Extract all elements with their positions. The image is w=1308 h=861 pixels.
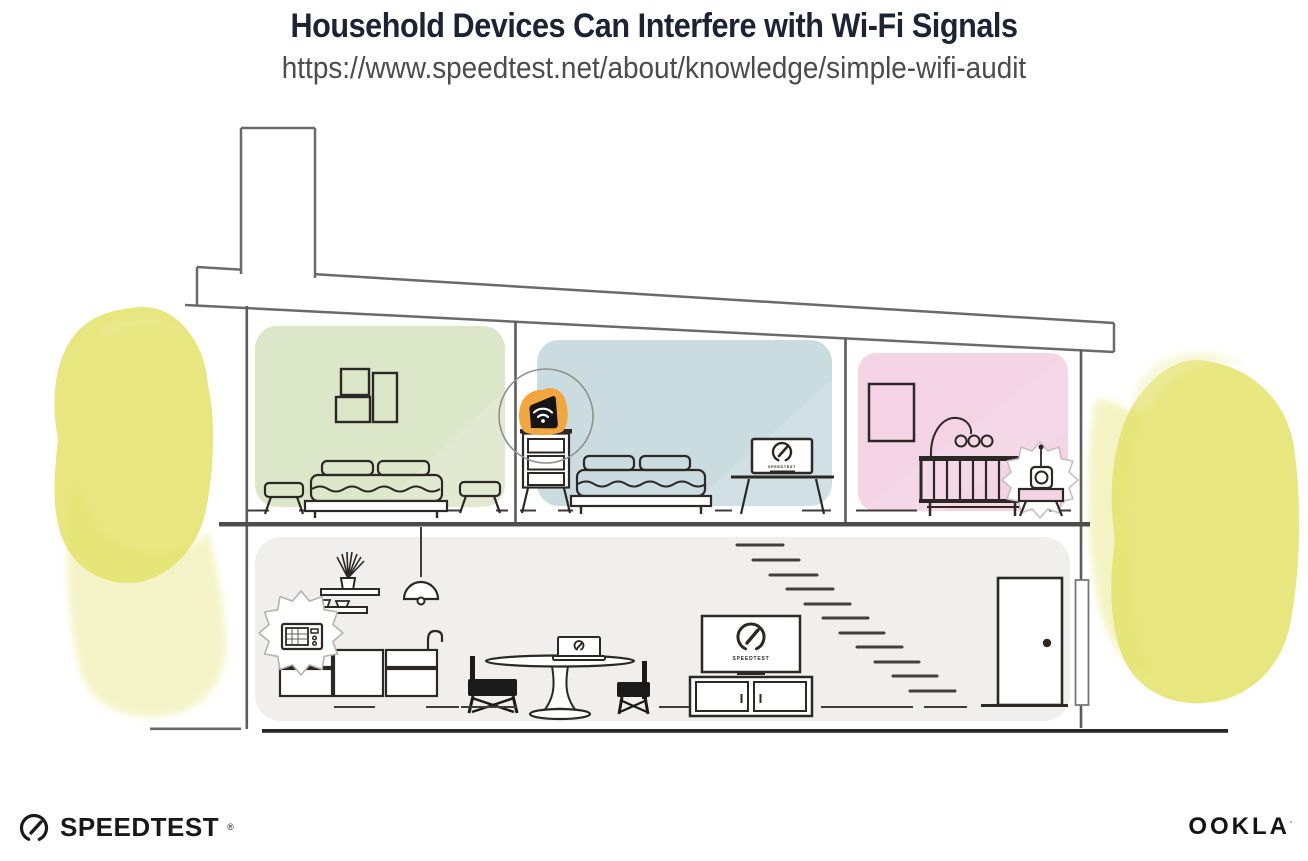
laptop-screen-label: SPEEDTEST (768, 465, 796, 469)
registered-mark: ’ (1290, 820, 1292, 830)
registered-mark: ® (227, 822, 234, 832)
microwave (282, 624, 322, 649)
ground-line-left (150, 728, 241, 731)
ookla-wordmark: OOKLA (1188, 813, 1290, 840)
foliage-left (54, 307, 226, 717)
house-illustration: SPEEDTEST (0, 0, 1308, 861)
infographic-page: Household Devices Can Interfere with Wi-… (0, 0, 1308, 861)
footer: SPEEDTEST® OOKLA’ (0, 809, 1308, 845)
speedtest-logo: SPEEDTEST® (16, 809, 234, 845)
dining-laptop (553, 637, 605, 660)
speedtest-wordmark: SPEEDTEST (60, 812, 219, 843)
foliage-right (1088, 353, 1299, 704)
tv-screen-label: SPEEDTEST (733, 656, 770, 662)
door-knob (1043, 639, 1051, 647)
ground-line (262, 729, 1228, 733)
chimney (241, 128, 315, 278)
drainpipe (1076, 580, 1089, 705)
ground-lines (150, 728, 1228, 733)
speedtest-gauge-icon (16, 809, 52, 845)
foliage-right-blob (1111, 360, 1299, 703)
wifi-router-icon (519, 388, 568, 435)
tv-stand (690, 677, 812, 716)
ookla-logo: OOKLA’ (1188, 813, 1292, 841)
upper-floor-line (219, 522, 1090, 527)
tv: SPEEDTEST (702, 616, 800, 675)
foliage-left-blob (54, 307, 213, 583)
